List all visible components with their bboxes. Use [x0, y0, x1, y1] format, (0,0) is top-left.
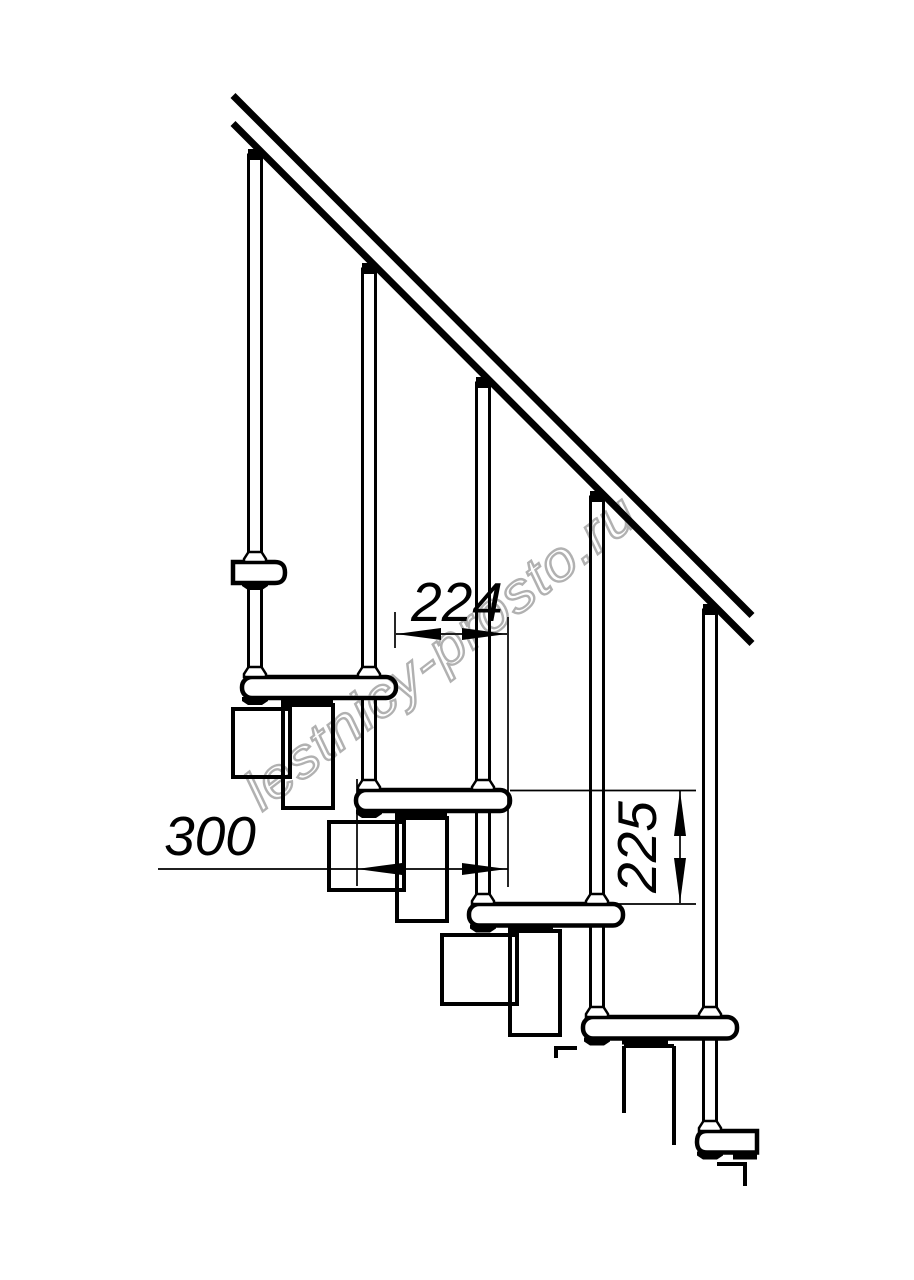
rod-rail-cap: [248, 149, 262, 160]
rod-collar: [472, 894, 494, 904]
module-shadow-bar: [508, 925, 553, 932]
rod-rail-cap: [362, 263, 376, 274]
arrowhead-left: [357, 863, 402, 875]
tread-3: [356, 790, 510, 811]
baluster-rod: [249, 155, 262, 679]
watermark-text: lestnicy-prosto.ru: [232, 481, 649, 821]
stringer-module-coupling: [329, 822, 404, 890]
module-shadow-bar: [622, 1038, 668, 1045]
handrail: [233, 96, 752, 644]
staircase-technical-drawing: 224 300 225 lestnicy-prosto.ru: [0, 0, 914, 1280]
tread-4: [469, 904, 623, 926]
rod-rail-cap: [703, 604, 717, 615]
rod-collar: [358, 780, 380, 790]
baluster-rod: [591, 497, 604, 1019]
arrowhead-down: [674, 858, 686, 903]
rod-collar: [586, 1007, 608, 1017]
module-shadow-bar: [395, 810, 447, 817]
tread-6-clipped: [697, 1131, 757, 1153]
rod-rail-cap: [476, 377, 490, 388]
rod-nut: [356, 810, 382, 818]
handrail-bottom-edge: [233, 124, 752, 644]
rod-nut: [584, 1038, 610, 1046]
rod-collar: [244, 667, 266, 677]
module-shadow-bar: [733, 1152, 757, 1160]
cut-module-corner: [717, 1164, 745, 1186]
rod-nut: [242, 582, 268, 590]
dimension-value-tread-depth: 300: [164, 805, 256, 867]
cut-module-corner: [556, 1048, 577, 1058]
arrowhead-up: [674, 791, 686, 836]
baluster-rod: [704, 610, 717, 1133]
tread-1-clipped: [233, 562, 285, 583]
handrail-top-edge: [233, 96, 752, 616]
stringer-module-coupling: [442, 935, 517, 1004]
rod-nut: [242, 697, 268, 705]
rod-nut: [470, 925, 496, 933]
dimension-value-rise: 225: [606, 801, 668, 894]
rod-collar: [699, 1121, 721, 1131]
tread-5: [583, 1017, 737, 1039]
treads: [233, 562, 757, 1153]
rod-nut: [697, 1152, 723, 1160]
rod-collar: [244, 552, 266, 562]
rod-collar: [586, 894, 608, 904]
rod-collar: [472, 780, 494, 790]
rod-collar: [699, 1007, 721, 1017]
drawing-page: 224 300 225 lestnicy-prosto.ru: [0, 0, 914, 1280]
